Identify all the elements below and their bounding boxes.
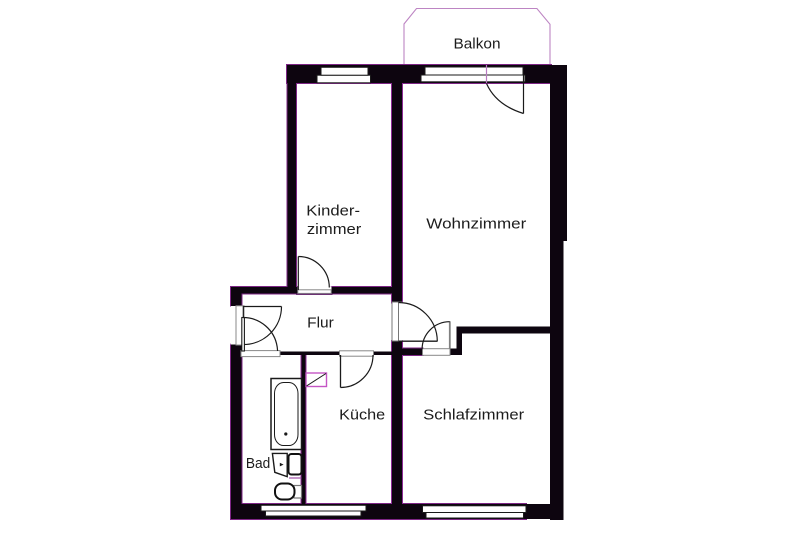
svg-text:Bad: Bad bbox=[246, 455, 270, 472]
svg-text:Küche: Küche bbox=[339, 407, 385, 424]
svg-text:Kinder-: Kinder- bbox=[306, 203, 360, 220]
svg-text:Flur: Flur bbox=[307, 314, 334, 331]
svg-text:Wohnzimmer: Wohnzimmer bbox=[426, 215, 526, 232]
svg-text:Balkon: Balkon bbox=[454, 35, 501, 52]
svg-text:zimmer: zimmer bbox=[307, 221, 361, 238]
svg-text:Schlafzimmer: Schlafzimmer bbox=[423, 407, 524, 424]
